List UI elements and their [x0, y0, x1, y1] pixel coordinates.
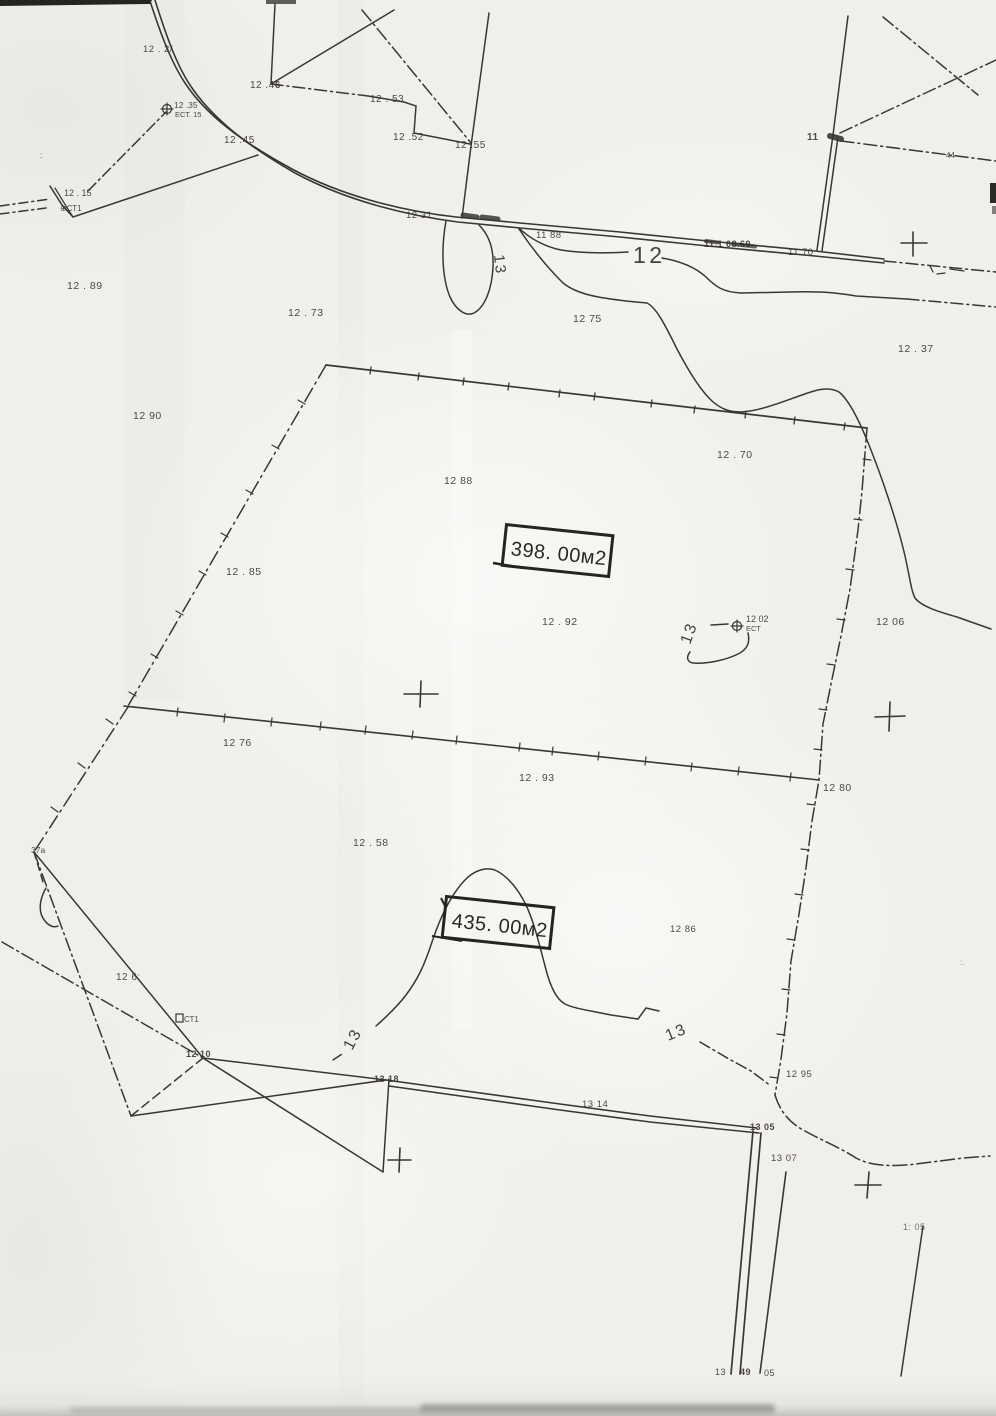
- svg-text:1: 05: 1: 05: [903, 1222, 926, 1232]
- svg-text:11: 11: [807, 132, 819, 143]
- svg-text:12 76: 12 76: [223, 737, 252, 749]
- svg-text:13 05: 13 05: [750, 1122, 775, 1132]
- svg-text:12: 12: [633, 242, 666, 268]
- svg-text:11 70: 11 70: [788, 247, 814, 258]
- svg-text:13: 13: [490, 254, 509, 276]
- svg-text:12 .35: 12 .35: [174, 100, 198, 110]
- svg-text:13 14: 13 14: [582, 1099, 608, 1110]
- svg-text:44: 44: [946, 151, 955, 160]
- svg-text:12 . 73: 12 . 73: [288, 307, 324, 319]
- svg-text:12 . 15: 12 . 15: [64, 188, 92, 198]
- svg-text:49: 49: [740, 1367, 751, 1377]
- svg-text:СТ1: СТ1: [184, 1015, 199, 1024]
- svg-text:12 .45: 12 .45: [224, 135, 255, 146]
- svg-text:12 . 53: 12 . 53: [370, 94, 404, 105]
- svg-text:12 . 93: 12 . 93: [519, 772, 555, 784]
- svg-text:13: 13: [715, 1367, 726, 1377]
- svg-text:12 . 58: 12 . 58: [353, 837, 389, 849]
- svg-text:13 07: 13 07: [771, 1153, 797, 1164]
- svg-text:12 75: 12 75: [573, 313, 602, 325]
- svg-text:12 31: 12 31: [406, 210, 432, 221]
- svg-text:ЕСТ. 15: ЕСТ. 15: [175, 110, 201, 119]
- svg-text:12 . 70: 12 . 70: [717, 449, 753, 461]
- svg-text:12 . 92: 12 . 92: [542, 616, 578, 628]
- svg-text:ЕСТ: ЕСТ: [746, 624, 761, 633]
- svg-text:12 80: 12 80: [823, 782, 852, 794]
- svg-text:12 02: 12 02: [746, 614, 769, 624]
- svg-text:12 . 2/: 12 . 2/: [143, 44, 173, 55]
- svg-text:12 .55: 12 .55: [455, 140, 486, 151]
- svg-text:05: 05: [764, 1368, 775, 1378]
- svg-text:⊕СТ1: ⊕СТ1: [60, 204, 82, 213]
- svg-text:11.1 68.69: 11.1 68.69: [704, 239, 751, 249]
- svg-text:12 88: 12 88: [444, 475, 473, 487]
- svg-text:37a: 37a: [31, 845, 45, 855]
- svg-text:12 .52: 12 .52: [393, 132, 424, 143]
- svg-text::.: :.: [960, 958, 964, 967]
- svg-text:12 . 89: 12 . 89: [67, 280, 103, 292]
- svg-text:12 06: 12 06: [876, 616, 905, 628]
- svg-text:12 10: 12 10: [186, 1049, 211, 1059]
- svg-text:13 18: 13 18: [374, 1074, 399, 1084]
- svg-text:12 .46: 12 .46: [250, 80, 281, 91]
- svg-text:12 . 37: 12 . 37: [898, 343, 934, 355]
- svg-text:12 6:: 12 6:: [116, 972, 141, 983]
- svg-text:12 . 85: 12 . 85: [226, 566, 262, 578]
- svg-text:12 90: 12 90: [133, 410, 162, 422]
- svg-text:12 86: 12 86: [670, 924, 696, 935]
- svg-text::: :: [40, 151, 42, 160]
- svg-text:11 88: 11 88: [536, 230, 562, 241]
- svg-text:12 95: 12 95: [786, 1069, 812, 1080]
